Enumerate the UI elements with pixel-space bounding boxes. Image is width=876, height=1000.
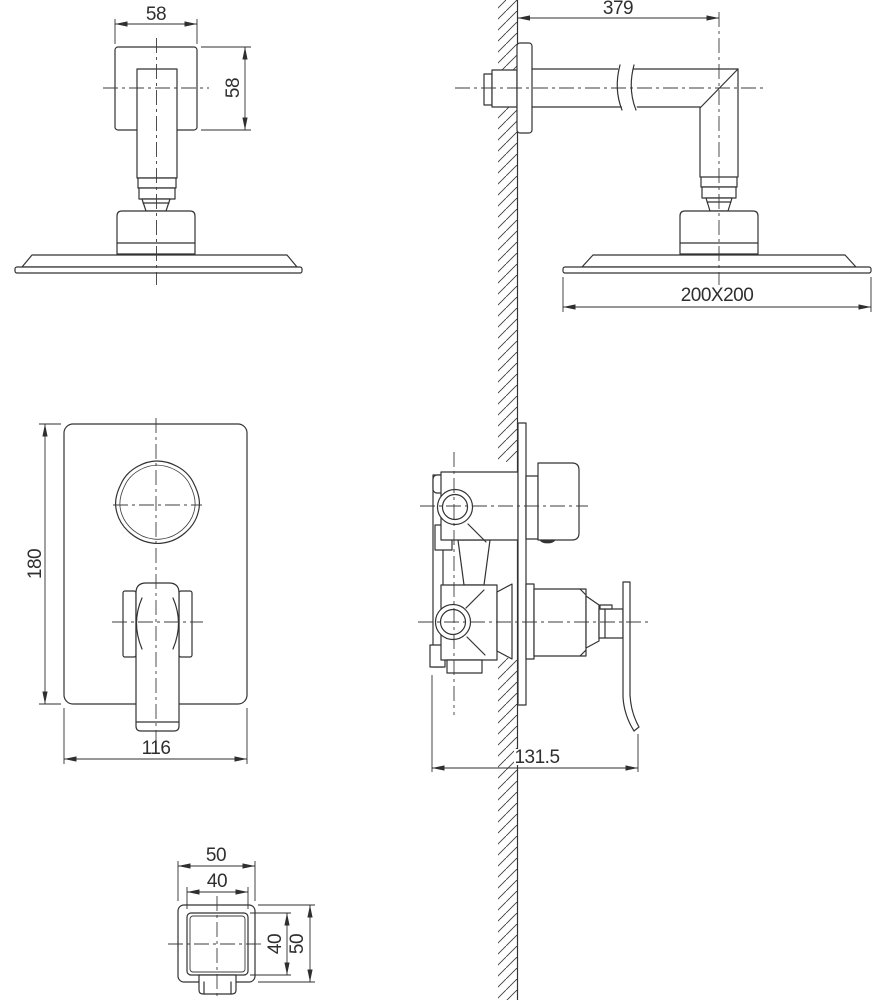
- handle-hub: [599, 609, 623, 638]
- dim-arm-length: 379: [518, 0, 720, 19]
- dim-label-valve-depth: 131.5: [514, 747, 559, 768]
- top-port-inner: [443, 495, 468, 520]
- head-plate: [22, 255, 297, 267]
- mixer-handle-side: [526, 582, 639, 731]
- showerhead-front-view: 58 58: [15, 4, 302, 285]
- handle-lever-blade: [623, 582, 639, 731]
- valve-body: [430, 472, 518, 673]
- trim-plate-side: [518, 423, 526, 705]
- mixer-handle: [123, 583, 192, 731]
- knob-body: [538, 463, 579, 540]
- dim-label-spout-inner-width: 40: [207, 871, 227, 892]
- technical-drawing-page: 58 58: [0, 0, 876, 1000]
- inlet-fitting: [492, 70, 517, 107]
- dim-label-spout-outer-height: 50: [287, 934, 308, 954]
- wall-hatching-upper: [498, 0, 517, 462]
- dim-label-spout-outer-width: 50: [206, 845, 226, 866]
- body-outlet: [447, 660, 482, 673]
- handle-tab-right: [179, 591, 192, 657]
- dim-plate-height: 180: [25, 424, 61, 704]
- handle-body: [136, 583, 179, 731]
- body-neck: [458, 540, 490, 585]
- handle-flange: [526, 584, 534, 659]
- diverter-knob-side: [526, 463, 579, 543]
- mixer-front-view: 180 116: [25, 418, 247, 764]
- dim-head-front-width: 58: [115, 4, 197, 44]
- arm-collar-lower: [139, 188, 175, 199]
- dim-label-head-width: 58: [146, 4, 166, 25]
- dim-label-head-size: 200X200: [681, 285, 754, 306]
- head-plate-rim: [15, 267, 302, 273]
- handle-sleeve: [534, 589, 586, 656]
- head-body: [117, 211, 195, 254]
- arm-collar: [138, 178, 176, 188]
- technical-drawing-canvas: 58 58: [0, 0, 876, 1000]
- wall-hatching-lower: [498, 658, 517, 1000]
- dim-spout-inner-width: 40: [187, 871, 248, 909]
- dim-label-head-height: 58: [223, 78, 244, 98]
- ball-joint: [142, 199, 170, 211]
- head-plate-rim-side: [563, 267, 871, 273]
- dim-label-plate-width: 116: [142, 738, 171, 759]
- dim-head-size: 200X200: [563, 277, 871, 312]
- handle-tab-left: [123, 591, 136, 657]
- cartridge-bell: [497, 584, 512, 659]
- mixer-side-view: 131.5: [418, 423, 652, 772]
- dim-valve-depth: 131.5: [432, 675, 638, 772]
- diverter-knob: [116, 461, 200, 543]
- dim-label-spout-inner-height: 40: [265, 934, 286, 954]
- dim-head-front-height: 58: [201, 47, 251, 130]
- shower-arm: [137, 69, 177, 178]
- inlet-cap: [484, 74, 492, 105]
- dim-label-arm-length: 379: [603, 0, 633, 19]
- knob-indicator: [540, 540, 555, 543]
- dim-label-plate-height: 180: [25, 549, 46, 579]
- knob-neck: [526, 476, 538, 539]
- spout-bottom-view: 50 40 40 50: [168, 845, 315, 1000]
